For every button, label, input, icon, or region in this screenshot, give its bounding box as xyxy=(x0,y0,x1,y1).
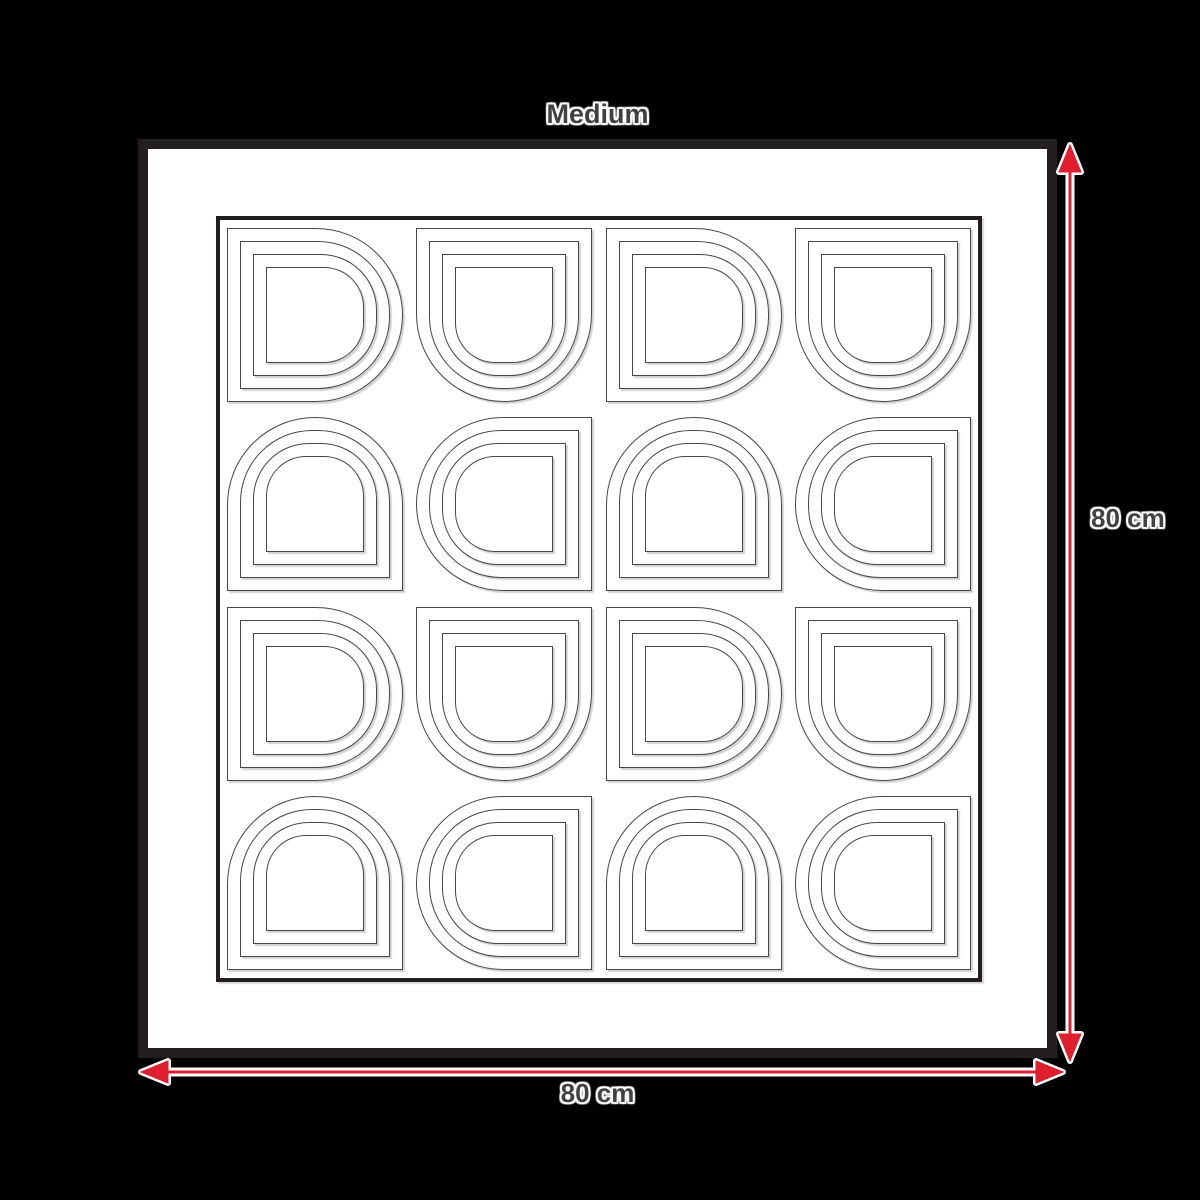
d-shape-left xyxy=(416,417,592,591)
d-shape-right xyxy=(606,228,782,402)
d-shape-up xyxy=(606,796,782,970)
pattern-cell xyxy=(220,789,410,979)
page-background: Medium 80 cm 80 cm xyxy=(0,0,1200,1200)
pattern-cell xyxy=(220,220,410,410)
d-outline xyxy=(645,456,743,552)
d-outline xyxy=(645,267,743,363)
pattern-cell xyxy=(599,599,789,789)
pattern-cell xyxy=(599,789,789,979)
d-outline xyxy=(455,456,553,552)
d-outline xyxy=(455,646,553,742)
d-outline xyxy=(455,267,553,363)
d-shape-right xyxy=(606,607,782,781)
pattern-cell xyxy=(410,789,600,979)
d-shape-left xyxy=(416,796,592,970)
d-shape-down xyxy=(795,228,971,402)
pattern-cell xyxy=(789,599,979,789)
pattern-cell xyxy=(220,410,410,600)
d-outline xyxy=(834,267,932,363)
d-shape-up xyxy=(227,796,403,970)
d-pattern-grid xyxy=(220,220,978,978)
pattern-cell xyxy=(789,220,979,410)
size-title: Medium xyxy=(138,99,1057,130)
d-shape-left xyxy=(795,796,971,970)
d-shape-down xyxy=(416,228,592,402)
pattern-cell xyxy=(410,599,600,789)
d-shape-up xyxy=(606,417,782,591)
picture-frame xyxy=(138,139,1057,1058)
width-label: 80 cm xyxy=(138,1078,1057,1109)
d-outline xyxy=(455,835,553,931)
d-outline xyxy=(834,835,932,931)
height-dimension-arrow xyxy=(1048,140,1092,1066)
pattern-cell xyxy=(789,410,979,600)
d-outline xyxy=(834,646,932,742)
d-outline xyxy=(834,456,932,552)
d-outline xyxy=(266,456,364,552)
d-outline xyxy=(645,646,743,742)
height-label: 80 cm xyxy=(1091,503,1165,534)
d-shape-right xyxy=(227,607,403,781)
pattern-cell xyxy=(410,220,600,410)
pattern-cell xyxy=(220,599,410,789)
d-outline xyxy=(645,835,743,931)
d-outline xyxy=(266,646,364,742)
d-shape-down xyxy=(795,607,971,781)
pattern-cell xyxy=(789,789,979,979)
d-outline xyxy=(266,267,364,363)
d-shape-up xyxy=(227,417,403,591)
d-outline xyxy=(266,835,364,931)
arrow-red xyxy=(1059,145,1081,1061)
pattern-cell xyxy=(410,410,600,600)
pattern-cell xyxy=(599,410,789,600)
pattern-cell xyxy=(599,220,789,410)
d-shape-left xyxy=(795,417,971,591)
artwork-panel xyxy=(216,216,982,982)
d-shape-right xyxy=(227,228,403,402)
d-shape-down xyxy=(416,607,592,781)
